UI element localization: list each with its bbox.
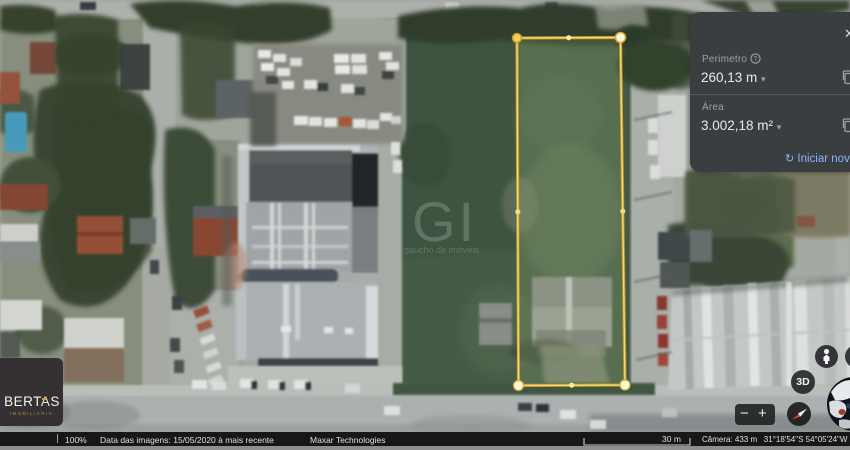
svg-text:GI: GI [412,190,477,253]
svg-text:gaucho de imóveis: gaucho de imóveis [404,245,480,255]
svg-text:?: ? [754,56,758,63]
